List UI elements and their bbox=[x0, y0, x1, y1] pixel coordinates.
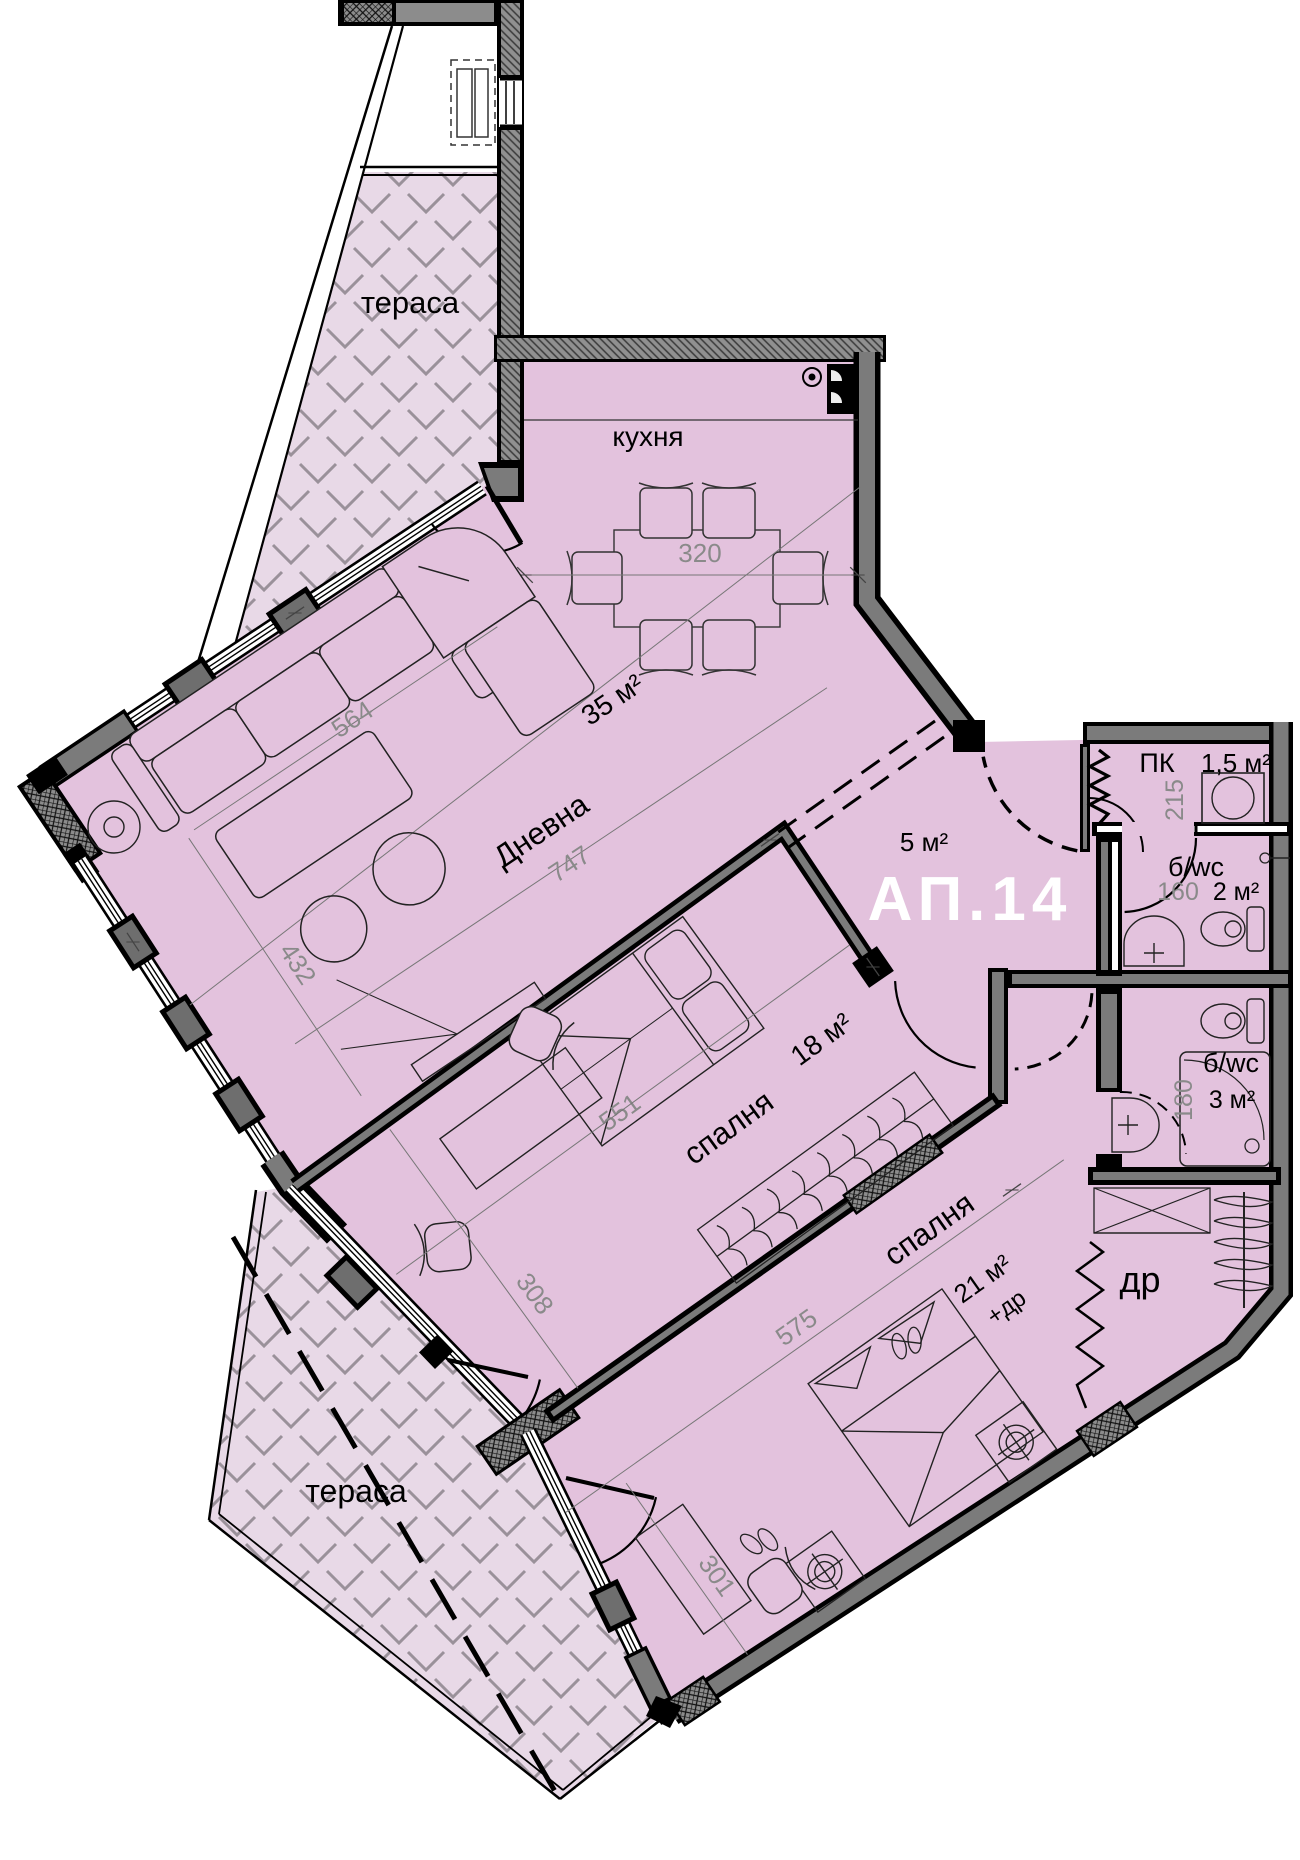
svg-text:др: др bbox=[1119, 1259, 1160, 1300]
svg-text:180: 180 bbox=[1170, 1079, 1198, 1121]
svg-text:320: 320 bbox=[678, 538, 721, 568]
svg-text:2 м²: 2 м² bbox=[1213, 878, 1259, 906]
svg-text:тераса: тераса bbox=[305, 1473, 407, 1509]
svg-text:160: 160 bbox=[1157, 878, 1199, 906]
svg-text:215: 215 bbox=[1161, 779, 1189, 821]
svg-text:АП.14: АП.14 bbox=[868, 865, 1073, 934]
svg-text:кухня: кухня bbox=[612, 421, 683, 452]
svg-text:5 м²: 5 м² bbox=[900, 827, 949, 857]
svg-text:ПК: ПК bbox=[1139, 748, 1174, 778]
svg-text:тераса: тераса bbox=[361, 285, 460, 320]
svg-text:1,5 м²: 1,5 м² bbox=[1201, 748, 1271, 778]
svg-text:б/wc: б/wc bbox=[1203, 1048, 1259, 1078]
svg-text:3 м²: 3 м² bbox=[1209, 1086, 1255, 1114]
